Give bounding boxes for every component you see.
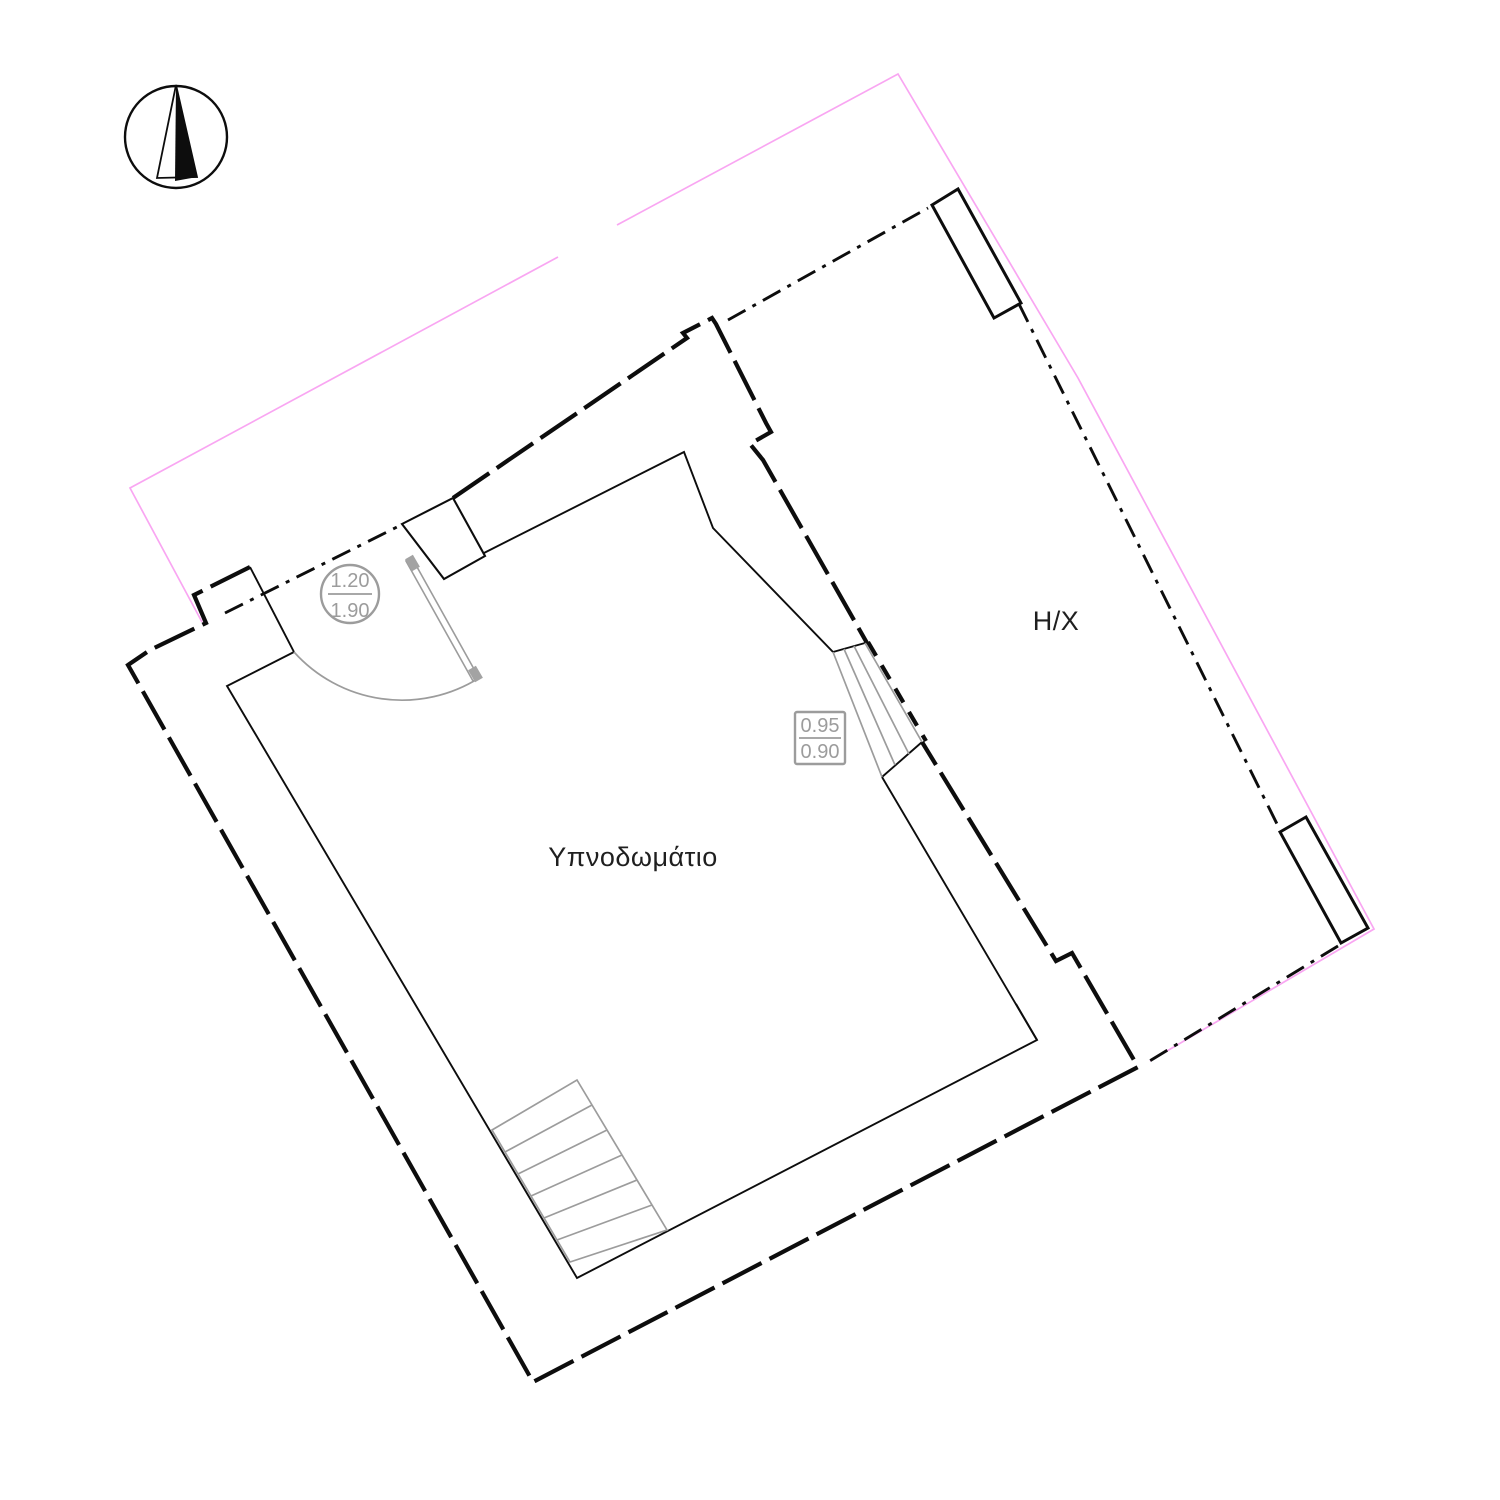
room-label-covered-area: Η/Χ: [1033, 606, 1080, 636]
window-line-2: [844, 649, 895, 765]
door-dimension-bubble: 1.20 1.90: [321, 565, 379, 623]
roof-outline-right: [1019, 304, 1282, 834]
window-line-4: [865, 643, 922, 742]
wall-top-and-divider: [453, 318, 867, 643]
wall-perimeter: [128, 567, 1138, 1382]
wall-stub-interior: [1016, 1004, 1037, 1040]
window-width-value: 0.95: [801, 715, 840, 737]
stairs: [492, 1080, 667, 1262]
stairs-outline: [492, 1080, 667, 1262]
roof-outline-bottom: [1148, 946, 1338, 1062]
stair-tread: [505, 1105, 592, 1152]
door-hinge-cap: [409, 557, 416, 569]
window-glazing: [833, 643, 922, 777]
door: [294, 557, 479, 700]
compass-needle-fill: [175, 85, 197, 181]
roof-post-top: [932, 189, 1021, 318]
floor-plan-drawing: 1.20 1.90 0.95 0.90 Υπνοδωμάτιο Η/Χ: [0, 0, 1500, 1500]
door-jamb-left: [250, 567, 294, 652]
north-arrow-icon: [125, 85, 227, 188]
window-jamb-upper: [833, 643, 865, 652]
room-label-bedroom: Υπνοδωμάτιο: [548, 842, 718, 872]
floor-plan-canvas: 1.20 1.90 0.95 0.90 Υπνοδωμάτιο Η/Χ: [0, 0, 1500, 1500]
window-dimension-box: 0.95 0.90: [795, 712, 845, 764]
roof-outline-top: [728, 208, 928, 320]
room-interior-top: [480, 452, 833, 652]
window-height-value: 0.90: [801, 741, 840, 763]
door-width-value: 1.20: [331, 570, 370, 592]
property-boundary-right: [617, 74, 1374, 1061]
door-end-cap: [472, 668, 479, 680]
door-swing-arc: [294, 652, 479, 700]
stair-tread: [544, 1180, 637, 1218]
door-height-value: 1.90: [331, 600, 370, 622]
stair-tread: [557, 1205, 652, 1240]
